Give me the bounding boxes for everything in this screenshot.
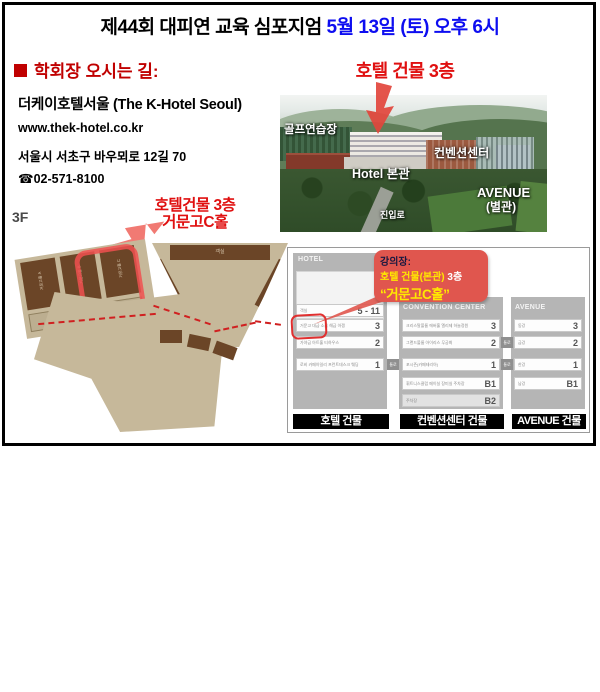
- hotel-website: www.thek-hotel.co.kr: [18, 121, 143, 135]
- directions-heading-label: 학회장 오시는 길:: [34, 62, 159, 81]
- row-floor: 1: [491, 360, 496, 370]
- row-label: 금강: [518, 340, 525, 346]
- callout-building: 호텔 건물(본관): [380, 272, 445, 283]
- corridor-connector: 통로: [387, 359, 399, 370]
- row-label: 그랜드볼룸 아이리스 무궁화: [406, 340, 452, 346]
- callout-floor: 3층: [445, 272, 463, 283]
- row-label: 한강: [518, 362, 525, 368]
- label-access-road: 진입로: [380, 208, 405, 221]
- label-hotel-main: Hotel 본관: [352, 163, 410, 182]
- hotel-phone: ☎02-571-8100: [18, 171, 104, 186]
- red-arrow-photo-icon: [358, 82, 408, 138]
- row-label: 주차장: [406, 398, 417, 404]
- footer-avenue-building: AVENUE 건물: [512, 414, 586, 429]
- row-label: 포시즌(카페테리아): [406, 362, 438, 368]
- row-label: 로비 카페아일리 프런트데스크 웨딩: [300, 362, 359, 368]
- title-datetime: 5월 13일 (토) 오후 6시: [322, 17, 500, 38]
- directions-heading: 학회장 오시는 길:: [14, 57, 159, 82]
- label-golf-range: 골프연습장: [284, 121, 337, 137]
- row-floor: B2: [484, 396, 496, 406]
- footer-hotel-building: 호텔 건물: [293, 414, 389, 429]
- label-convention-center: 컨벤션센터: [434, 144, 489, 161]
- corridor-connector: 통로: [501, 359, 513, 370]
- floor-3f-label: 3F: [12, 209, 28, 225]
- row-floor: B1: [484, 379, 496, 389]
- convention-column: [399, 297, 503, 409]
- convention-row-2f: 그랜드볼룸 아이리스 무궁화2: [402, 336, 500, 349]
- row-floor: 3: [573, 321, 578, 331]
- row-floor: 3: [491, 321, 496, 331]
- label-avenue-annex: (별관): [486, 198, 516, 215]
- avenue-row-b1: 남강B1: [514, 377, 582, 390]
- row-floor: 2: [573, 338, 578, 348]
- row-label: 크리스탈볼룸 에버홀 엘리제 하늘정원: [406, 323, 468, 329]
- callout-line2: 호텔 건물(본관) 3층: [380, 268, 482, 283]
- row-label: 동강: [518, 323, 525, 329]
- small-room: [160, 330, 182, 343]
- hotel-column-header: HOTEL: [298, 256, 323, 263]
- convention-row-b2: 주차장B2: [402, 394, 500, 407]
- room-a-label: 거문고홀 A: [34, 256, 48, 306]
- row-label: 휘트니스클럽 메이실 장미실 주차장: [406, 381, 465, 387]
- row-floor: 1: [375, 360, 380, 370]
- avenue-row-1f: 한강1: [514, 358, 582, 371]
- convention-row-1f: 포시즌(카페테리아)1: [402, 358, 500, 371]
- corridor-connector: 통로: [501, 337, 513, 348]
- convention-row-b1: 휘트니스클럽 메이실 장미실 주차장B1: [402, 377, 500, 390]
- row-label: 가야금 아트홀 티하우스: [300, 340, 339, 346]
- convention-row-3f: 크리스탈볼룸 에버홀 엘리제 하늘정원3: [402, 319, 500, 332]
- photo-annotation: 호텔 건물 3층: [320, 57, 490, 83]
- geomungo-row-circle: [290, 313, 327, 340]
- row-floor: 2: [491, 338, 496, 348]
- footer-convention-building: 컨벤션센터 건물: [400, 414, 504, 429]
- callout-line1: 강의장:: [380, 253, 482, 268]
- slide-title: 제44회 대피연 교육 심포지엄 5월 13일 (토) 오후 6시: [0, 12, 600, 39]
- title-text: 제44회 대피연 교육 심포지엄: [101, 17, 322, 38]
- ballroom-inner: [104, 622, 194, 692]
- row-label: 남강: [518, 381, 525, 387]
- row-floor: 1: [573, 360, 578, 370]
- hotel-address: 서울시 서초구 바우뫼로 12길 70: [18, 146, 186, 165]
- callout-hall-name: “거문고C홀”: [380, 283, 482, 303]
- red-square-bullet: [14, 64, 27, 77]
- lecture-room-callout: 강의장: 호텔 건물(본관) 3층 “거문고C홀”: [374, 250, 488, 302]
- hotel-name: 더케이호텔서울 (The K-Hotel Seoul): [18, 93, 242, 114]
- avenue-row-3f: 동강3: [514, 319, 582, 332]
- slide: 제44회 대피연 교육 심포지엄 5월 13일 (토) 오후 6시 학회장 오시…: [0, 0, 600, 450]
- convention-column-header: CONVENTION CENTER: [403, 304, 486, 311]
- guest-room-top: 객실: [170, 245, 270, 260]
- avenue-column-header: AVENUE: [515, 304, 545, 311]
- avenue-row-2f: 금강2: [514, 336, 582, 349]
- row-floor: 2: [375, 338, 380, 348]
- avenue-column: [511, 297, 585, 409]
- hotel-row-1f: 로비 카페아일리 프런트데스크 웨딩1: [296, 358, 384, 371]
- hotel-aerial-photo: 골프연습장 컨벤션센터 Hotel 본관 AVENUE (별관) 진입로: [280, 95, 547, 232]
- row-floor: B1: [566, 379, 578, 389]
